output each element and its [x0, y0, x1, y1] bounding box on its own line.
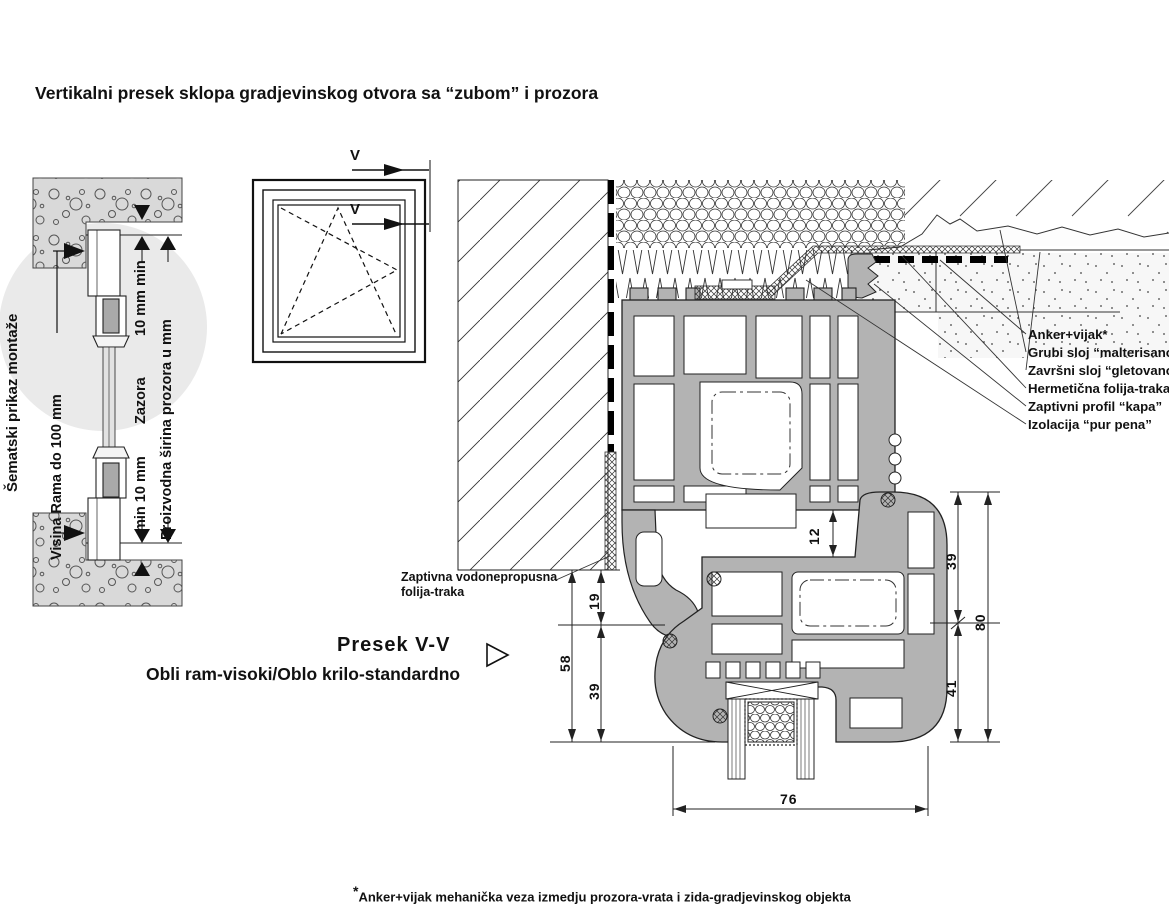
callout-grubi-sloj: Grubi sloj “malterisano”: [1028, 344, 1169, 362]
dim-39-left: 39: [586, 682, 602, 700]
frame-height-label: Visina Rama do 100 mm: [49, 394, 65, 560]
installation-schematic: [0, 178, 207, 606]
dim-39-right: 39: [943, 552, 959, 570]
footnote: *Anker+vijak mehanička veza izmedju proz…: [353, 883, 851, 904]
callout-zavrsni-sloj: Završni sloj “gletovano”: [1028, 362, 1169, 380]
membrane-label: Zaptivna vodonepropusna folija-traka: [401, 570, 557, 600]
production-width-label: Proizvodna širina prozora u mm: [159, 319, 175, 540]
section-cut-marks: [352, 160, 430, 232]
technical-drawing-page: Vertikalni presek sklopa gradjevinskog o…: [0, 0, 1169, 907]
section-direction-triangle-icon: [487, 644, 508, 666]
dim-41: 41: [943, 679, 959, 697]
left-wall-hatch: [458, 180, 608, 570]
main-section: [458, 180, 1169, 816]
dim-76: 76: [780, 791, 798, 807]
glass-unit: [726, 682, 818, 779]
gap-bottom-label: min 10 mm: [133, 456, 149, 532]
window-elevation-icon: [253, 160, 430, 362]
callout-hermeticna-folija: Hermetična folija-traka: [1028, 380, 1169, 398]
tilt-turn-symbol: [281, 208, 397, 334]
gap-top-label: 10 mm min: [133, 260, 149, 336]
section-title-line2: Obli ram-visoki/Oblo krilo-standardno: [146, 664, 460, 685]
footnote-text: Anker+vijak mehanička veza izmedju prozo…: [358, 889, 850, 904]
callout-izolacija: Izolacija “pur pena”: [1028, 416, 1152, 434]
callout-zaptivni-profil: Zaptivni profil “kapa”: [1028, 398, 1162, 416]
membrane-label-line2: folija-traka: [401, 585, 557, 600]
dim-80: 80: [972, 613, 988, 631]
callout-anker: Anker+vijak*: [1028, 326, 1108, 344]
insulation-board: [616, 180, 905, 248]
section-mark-v-top: V: [350, 147, 360, 164]
gap-middle-label: Zazora: [133, 377, 149, 424]
dim-12: 12: [806, 527, 822, 545]
mortar-bed-dots: [862, 253, 1169, 358]
dim-19: 19: [586, 592, 602, 610]
dim-58: 58: [557, 654, 573, 672]
page-title: Vertikalni presek sklopa gradjevinskog o…: [35, 83, 598, 104]
membrane-label-line1: Zaptivna vodonepropusna: [401, 570, 557, 585]
section-mark-v-bottom: V: [350, 201, 360, 218]
schematic-side-label: Šematski prikaz montaže: [4, 314, 21, 492]
membrane-tape-strip: [605, 452, 616, 570]
section-drawing-graphics: [0, 0, 1169, 907]
section-title-line1: Presek V-V: [337, 634, 450, 657]
